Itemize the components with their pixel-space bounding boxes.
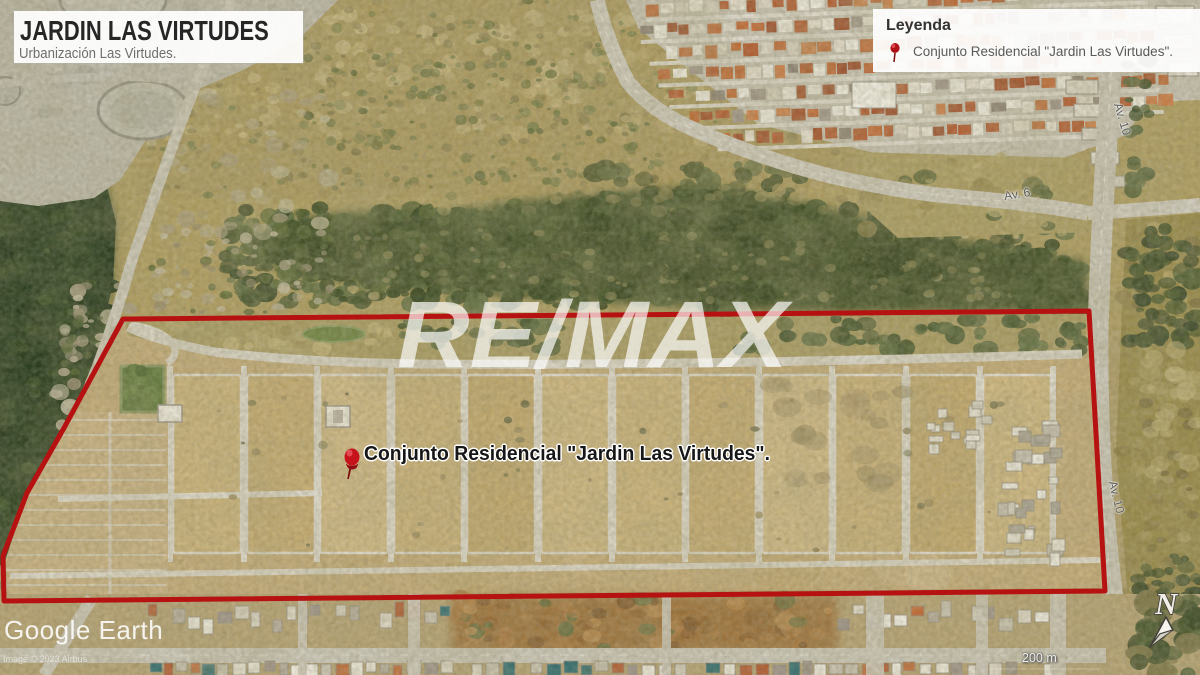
svg-text:N: N (1154, 586, 1179, 621)
